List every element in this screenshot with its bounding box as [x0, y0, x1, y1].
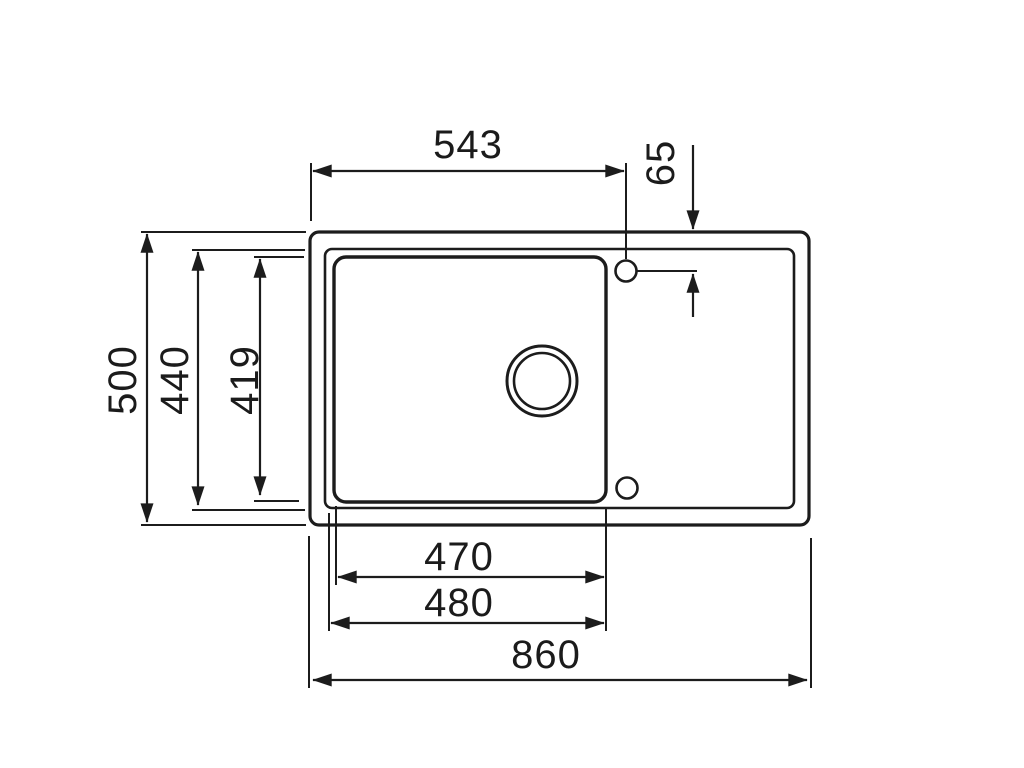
dim-label-470: 470: [424, 535, 494, 579]
dim-label-419: 419: [223, 345, 267, 415]
tap-hole-bottom: [617, 478, 638, 499]
dim-label-860: 860: [511, 633, 581, 677]
sink-outer-edge: [310, 232, 809, 525]
dim-label-543: 543: [433, 123, 503, 167]
bowl-edge: [334, 257, 606, 502]
drawing-canvas: 543 65 500 440 419 470 480 860: [0, 0, 1024, 768]
dim-label-500: 500: [101, 345, 145, 415]
sink-body: [310, 232, 809, 525]
tap-hole-top: [616, 261, 637, 282]
drain-outer-circle: [507, 346, 577, 416]
sink-dimension-drawing: 543 65 500 440 419 470 480 860: [0, 0, 1024, 768]
dimension-labels: 543 65 500 440 419 470 480 860: [101, 123, 683, 677]
drain-inner-circle: [514, 353, 570, 409]
dim-label-440: 440: [153, 345, 197, 415]
sink-rim-edge: [325, 249, 794, 508]
dim-label-65: 65: [639, 140, 683, 187]
dim-label-480: 480: [424, 581, 494, 625]
